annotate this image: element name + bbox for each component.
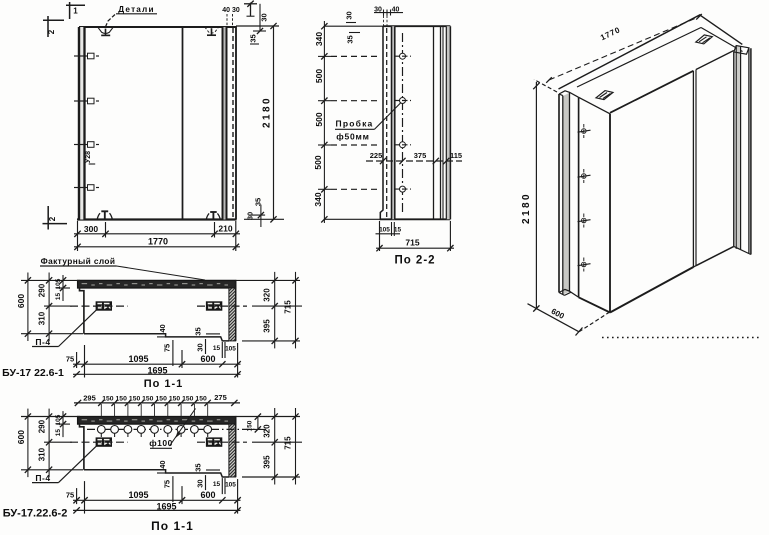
svg-text:П-4: П-4 <box>35 473 50 483</box>
svg-text:600: 600 <box>16 430 26 444</box>
svg-text:По 2-2: По 2-2 <box>394 255 435 267</box>
svg-text:300: 300 <box>84 224 98 234</box>
svg-text:ф100: ф100 <box>149 438 173 448</box>
svg-text:Фактурный слой: Фактурный слой <box>41 256 116 266</box>
svg-text:15: 15 <box>55 429 62 437</box>
svg-text:2180: 2180 <box>262 96 273 128</box>
svg-text:35: 35 <box>249 34 258 42</box>
svg-text:2: 2 <box>48 216 57 221</box>
svg-text:150: 150 <box>102 396 114 403</box>
svg-text:По 1-1: По 1-1 <box>151 519 194 533</box>
svg-text:500: 500 <box>314 112 324 126</box>
svg-text:340: 340 <box>314 32 324 46</box>
svg-text:75: 75 <box>66 355 74 364</box>
svg-text:40: 40 <box>158 324 167 332</box>
svg-text:150: 150 <box>129 396 141 403</box>
svg-text:395: 395 <box>263 455 272 469</box>
svg-text:105: 105 <box>379 226 390 233</box>
svg-text:275: 275 <box>214 393 227 402</box>
svg-text:1: 1 <box>73 7 78 16</box>
svg-text:150: 150 <box>182 396 194 403</box>
svg-text:15: 15 <box>213 345 221 352</box>
svg-text:30: 30 <box>345 11 354 19</box>
svg-text:35: 35 <box>194 327 203 335</box>
svg-text:600: 600 <box>200 490 215 500</box>
svg-text:75: 75 <box>163 480 172 488</box>
svg-text:2: 2 <box>47 29 56 34</box>
svg-text:340: 340 <box>313 192 323 206</box>
svg-text:40: 40 <box>158 460 167 468</box>
svg-text:150: 150 <box>116 396 128 403</box>
svg-text:105: 105 <box>55 414 62 425</box>
svg-text:715: 715 <box>284 436 293 450</box>
svg-text:15: 15 <box>55 293 62 301</box>
svg-text:375: 375 <box>414 151 427 160</box>
svg-text:395: 395 <box>263 319 272 333</box>
svg-text:35: 35 <box>254 198 263 206</box>
svg-text:1095: 1095 <box>128 354 148 364</box>
svg-text:40 30: 40 30 <box>222 7 240 14</box>
svg-text:40: 40 <box>392 6 400 13</box>
svg-text:35: 35 <box>194 463 203 471</box>
svg-text:1095: 1095 <box>128 490 148 500</box>
svg-text:15: 15 <box>213 481 221 488</box>
svg-text:105: 105 <box>55 278 62 289</box>
svg-text:600: 600 <box>200 354 215 364</box>
svg-text:115: 115 <box>450 151 462 160</box>
svg-text:150: 150 <box>169 396 181 403</box>
svg-text:150: 150 <box>247 420 254 431</box>
svg-text:15: 15 <box>394 226 402 233</box>
svg-text:210: 210 <box>218 223 232 233</box>
svg-text:310: 310 <box>38 447 47 461</box>
svg-text:295: 295 <box>83 394 96 403</box>
svg-text:600: 600 <box>16 294 26 308</box>
svg-text:БУ-17.22.6-2: БУ-17.22.6-2 <box>3 508 68 520</box>
svg-text:По 1-1: По 1-1 <box>144 378 184 390</box>
svg-text:75: 75 <box>163 344 172 352</box>
svg-text:105: 105 <box>225 346 236 353</box>
svg-text:П-4: П-4 <box>35 337 50 347</box>
svg-text:150: 150 <box>195 396 207 403</box>
svg-text:Пробка: Пробка <box>336 119 374 129</box>
svg-text:715: 715 <box>405 238 419 248</box>
svg-text:30: 30 <box>374 6 382 13</box>
svg-text:30: 30 <box>260 13 269 21</box>
svg-text:320: 320 <box>263 288 272 302</box>
svg-text:150: 150 <box>142 396 154 403</box>
svg-text:1695: 1695 <box>156 502 176 512</box>
svg-text:320: 320 <box>263 424 272 438</box>
svg-text:500: 500 <box>313 155 323 169</box>
svg-text:ф50мм: ф50мм <box>336 132 369 142</box>
svg-text:30: 30 <box>196 479 205 487</box>
svg-text:290: 290 <box>38 419 47 433</box>
svg-text:75: 75 <box>66 491 74 500</box>
svg-text:105: 105 <box>225 482 236 489</box>
svg-text:30: 30 <box>196 343 205 351</box>
svg-text:1695: 1695 <box>147 366 167 376</box>
svg-text:500: 500 <box>314 69 324 83</box>
svg-text:715: 715 <box>284 300 293 314</box>
svg-text:Детали: Детали <box>118 5 154 14</box>
svg-text:225: 225 <box>370 151 383 160</box>
svg-text:1770: 1770 <box>148 237 168 247</box>
svg-text:290: 290 <box>38 283 47 297</box>
svg-text:БУ-17 22.6-1: БУ-17 22.6-1 <box>2 367 64 379</box>
svg-text:310: 310 <box>38 311 47 325</box>
svg-text:35: 35 <box>346 35 355 43</box>
svg-text:У28: У28 <box>85 151 92 163</box>
svg-text:150: 150 <box>156 396 168 403</box>
svg-text:2180: 2180 <box>521 192 532 224</box>
